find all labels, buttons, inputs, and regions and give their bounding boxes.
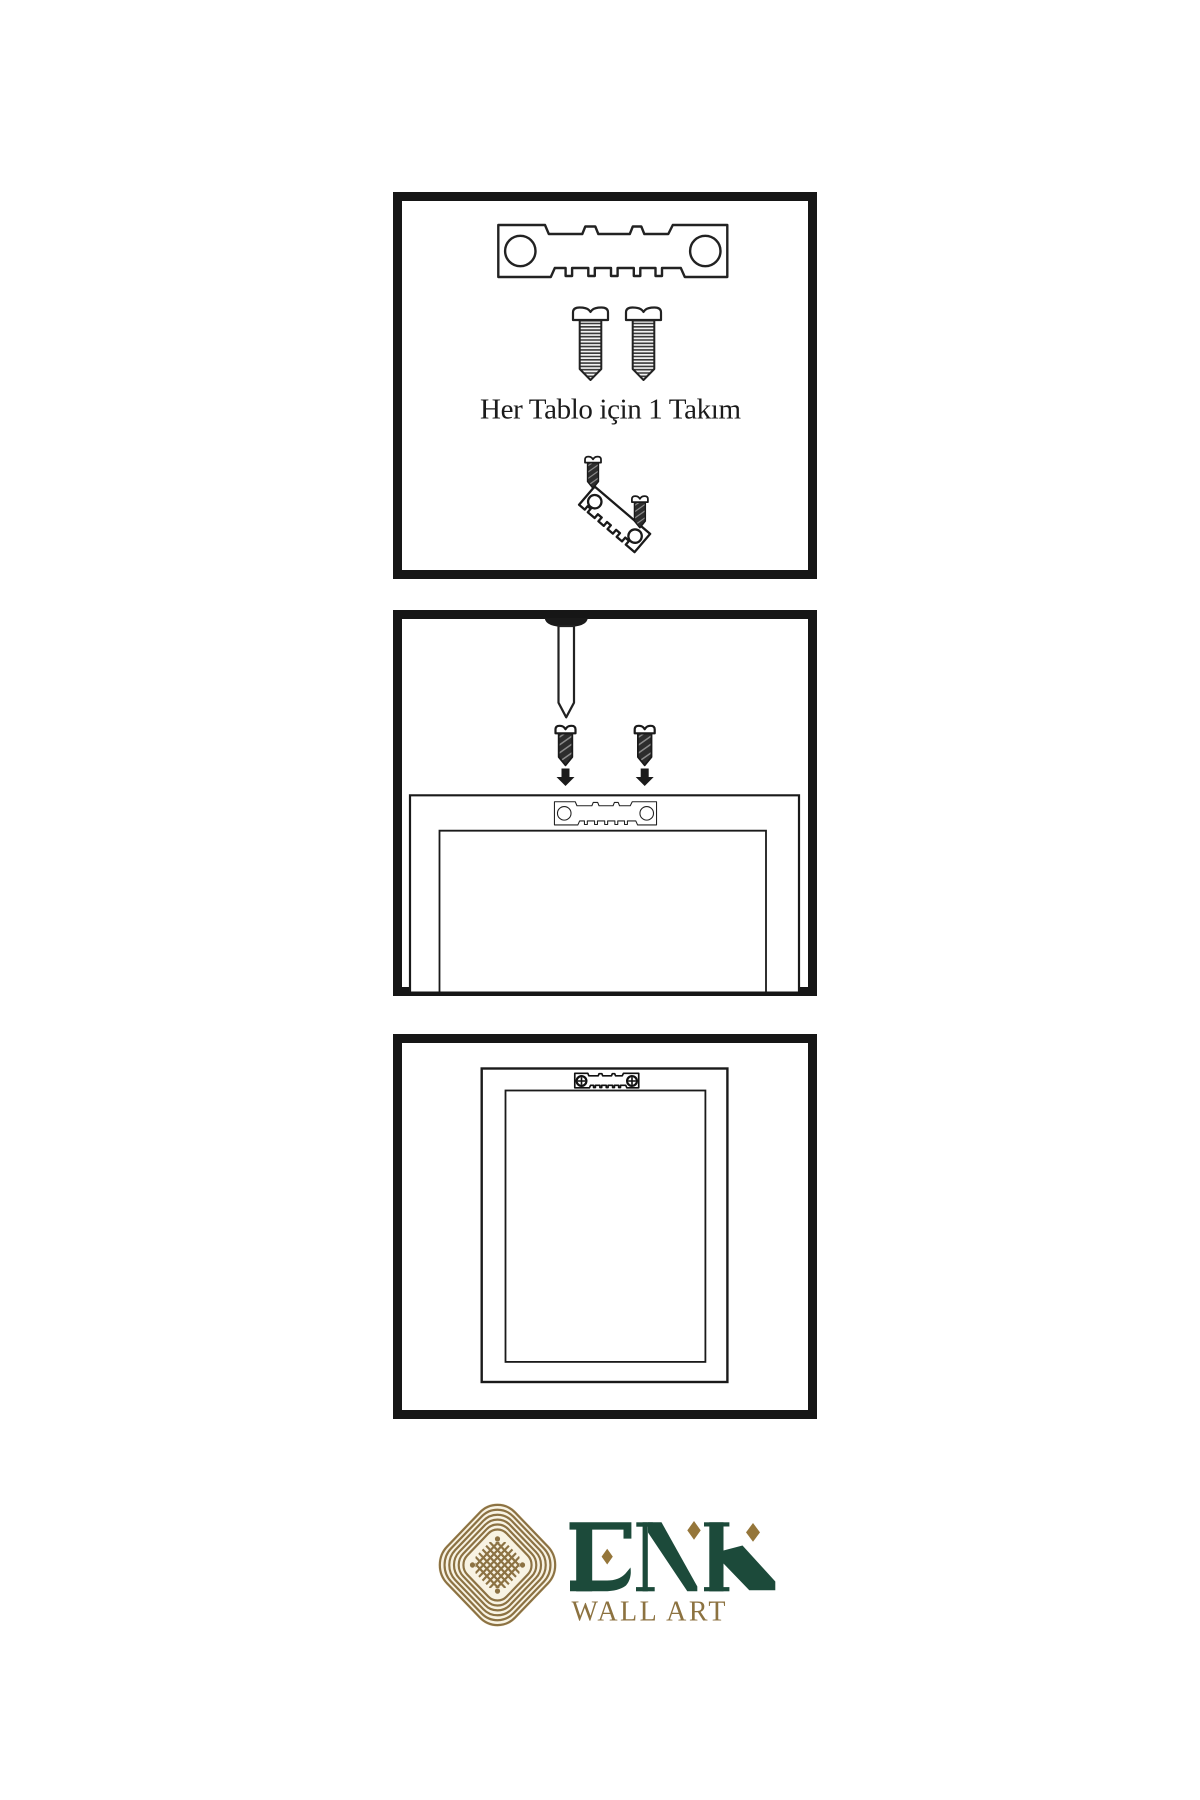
svg-text:Her Tablo için 1 Takım: Her Tablo için 1 Takım (480, 394, 741, 426)
svg-text:WALL ART: WALL ART (572, 1597, 730, 1628)
